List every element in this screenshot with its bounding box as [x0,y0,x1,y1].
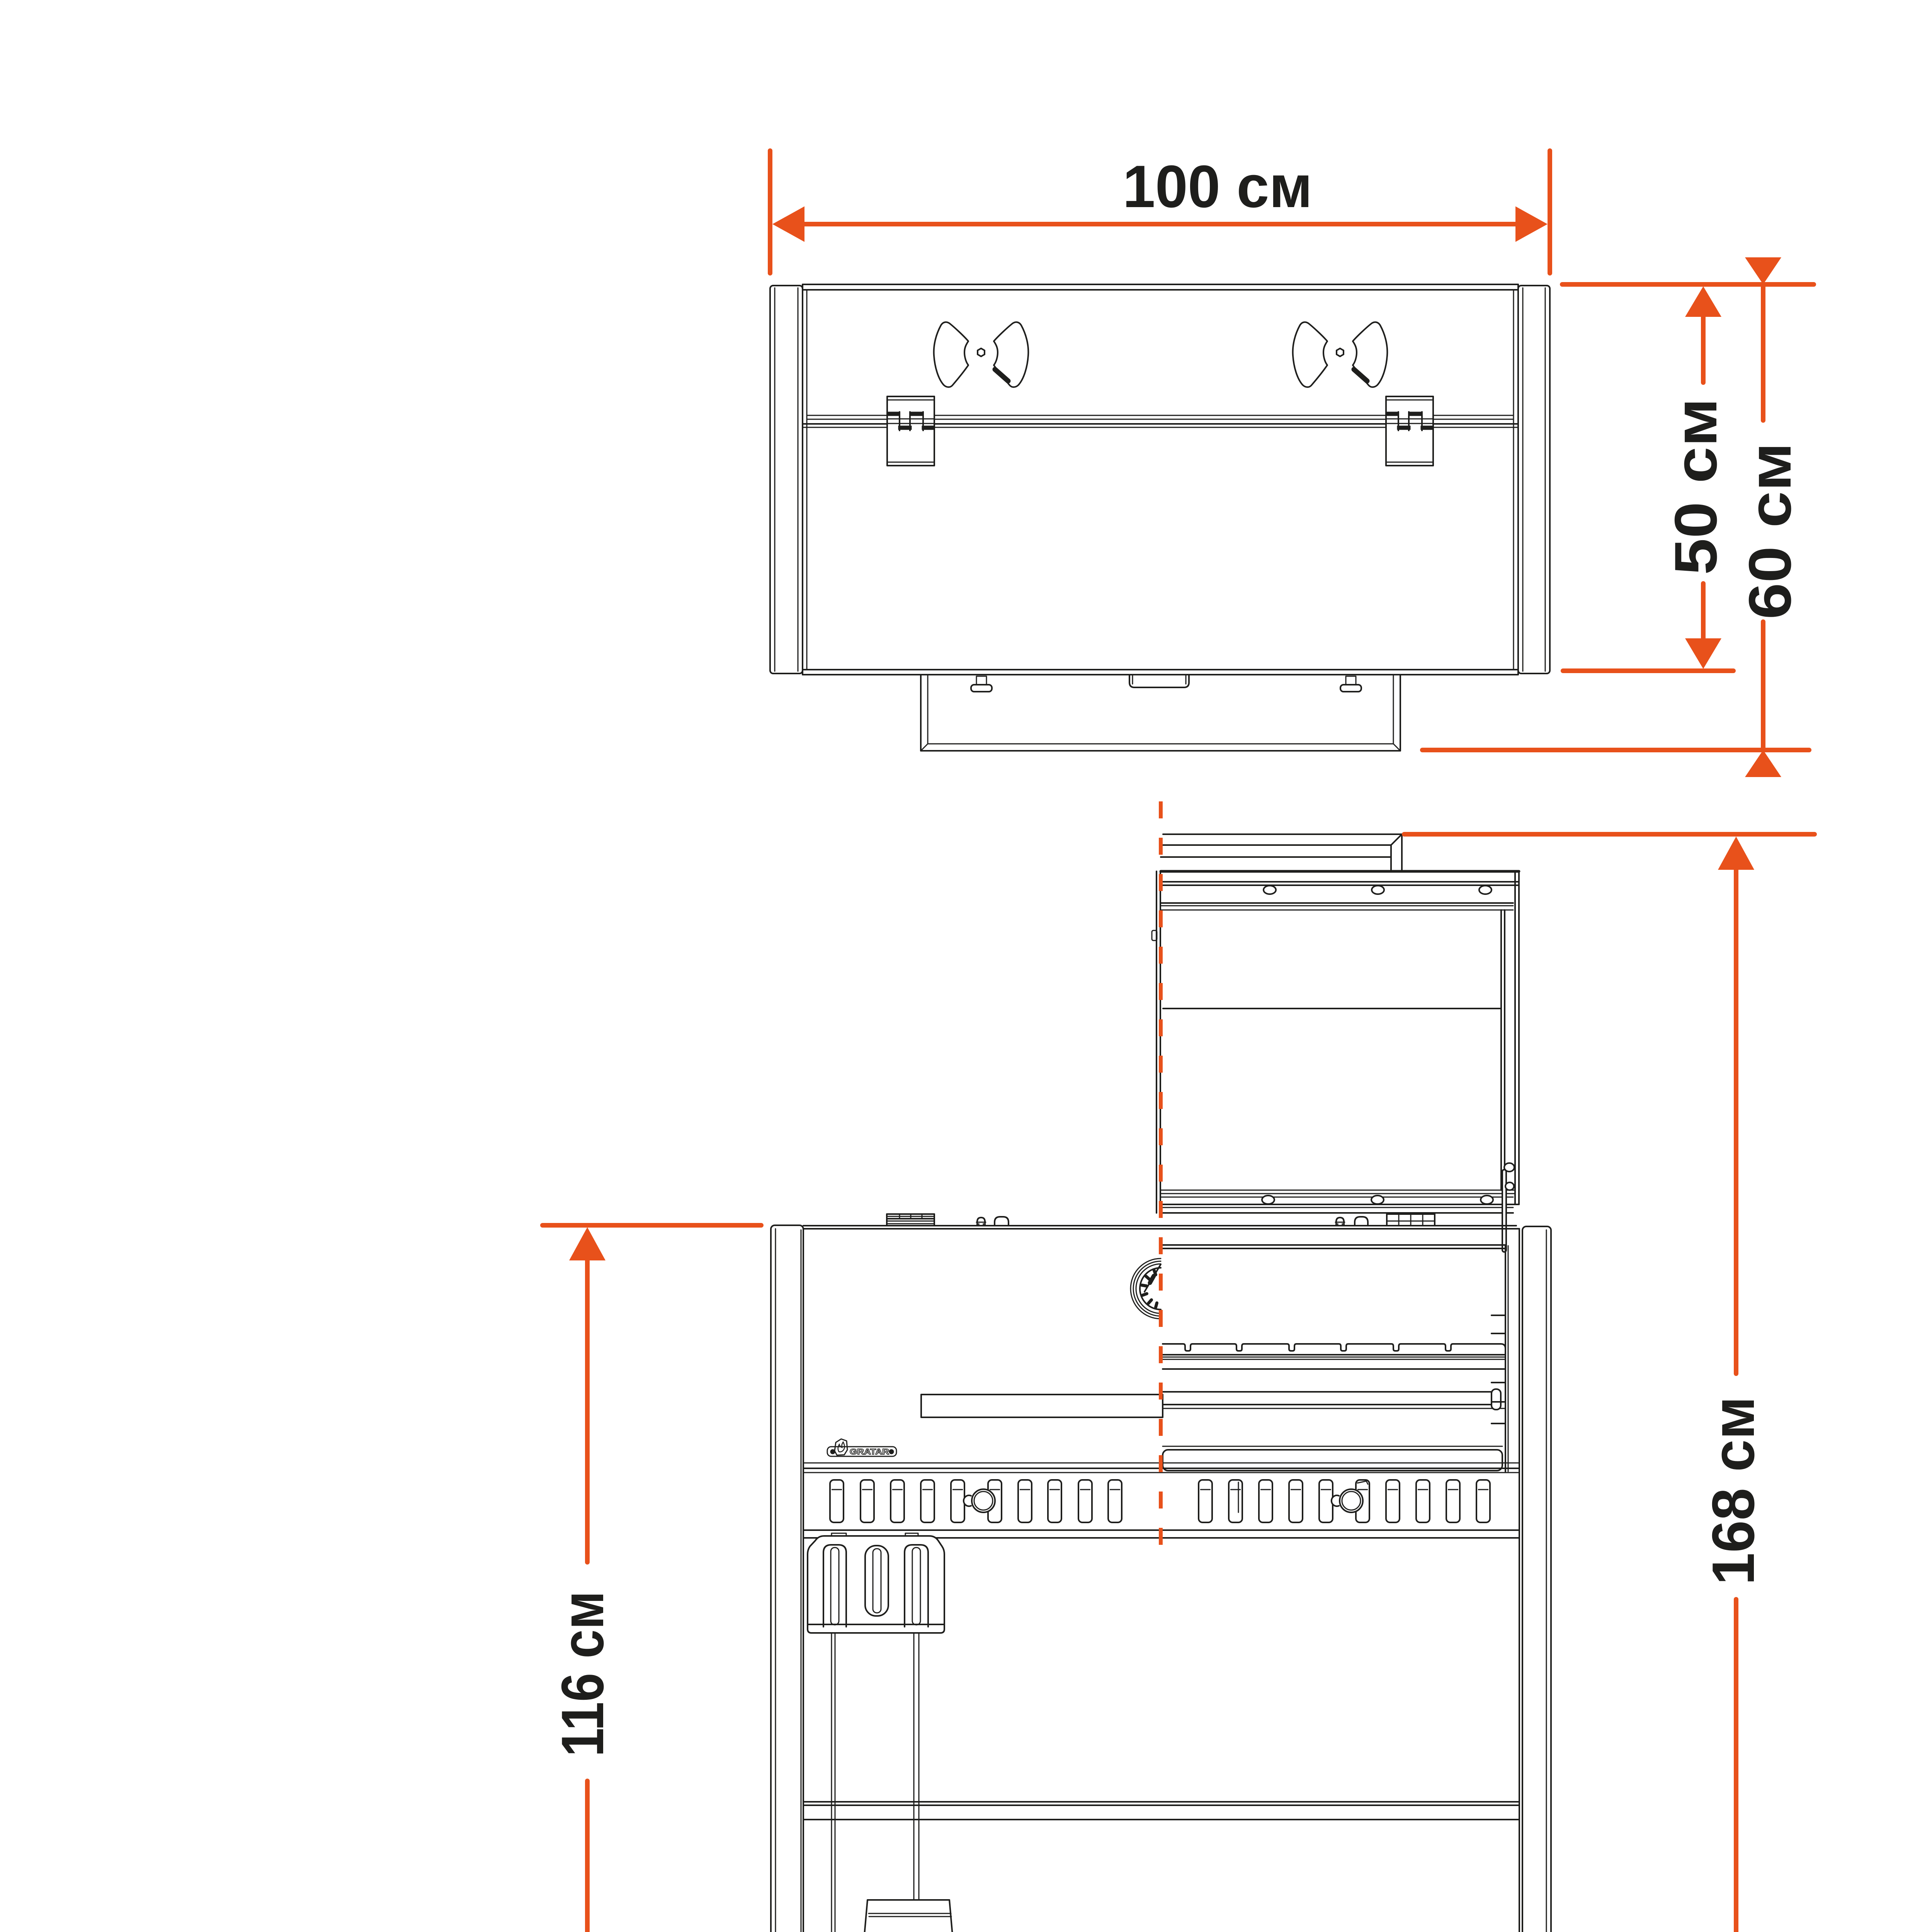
svg-text:GRATAR: GRATAR [850,1447,889,1456]
svg-text:50 см: 50 см [1662,398,1729,575]
svg-text:100 см: 100 см [1123,153,1313,220]
svg-text:60 см: 60 см [1736,442,1803,619]
svg-text:116 см: 116 см [549,1591,616,1757]
svg-text:168 см: 168 см [1700,1396,1767,1585]
